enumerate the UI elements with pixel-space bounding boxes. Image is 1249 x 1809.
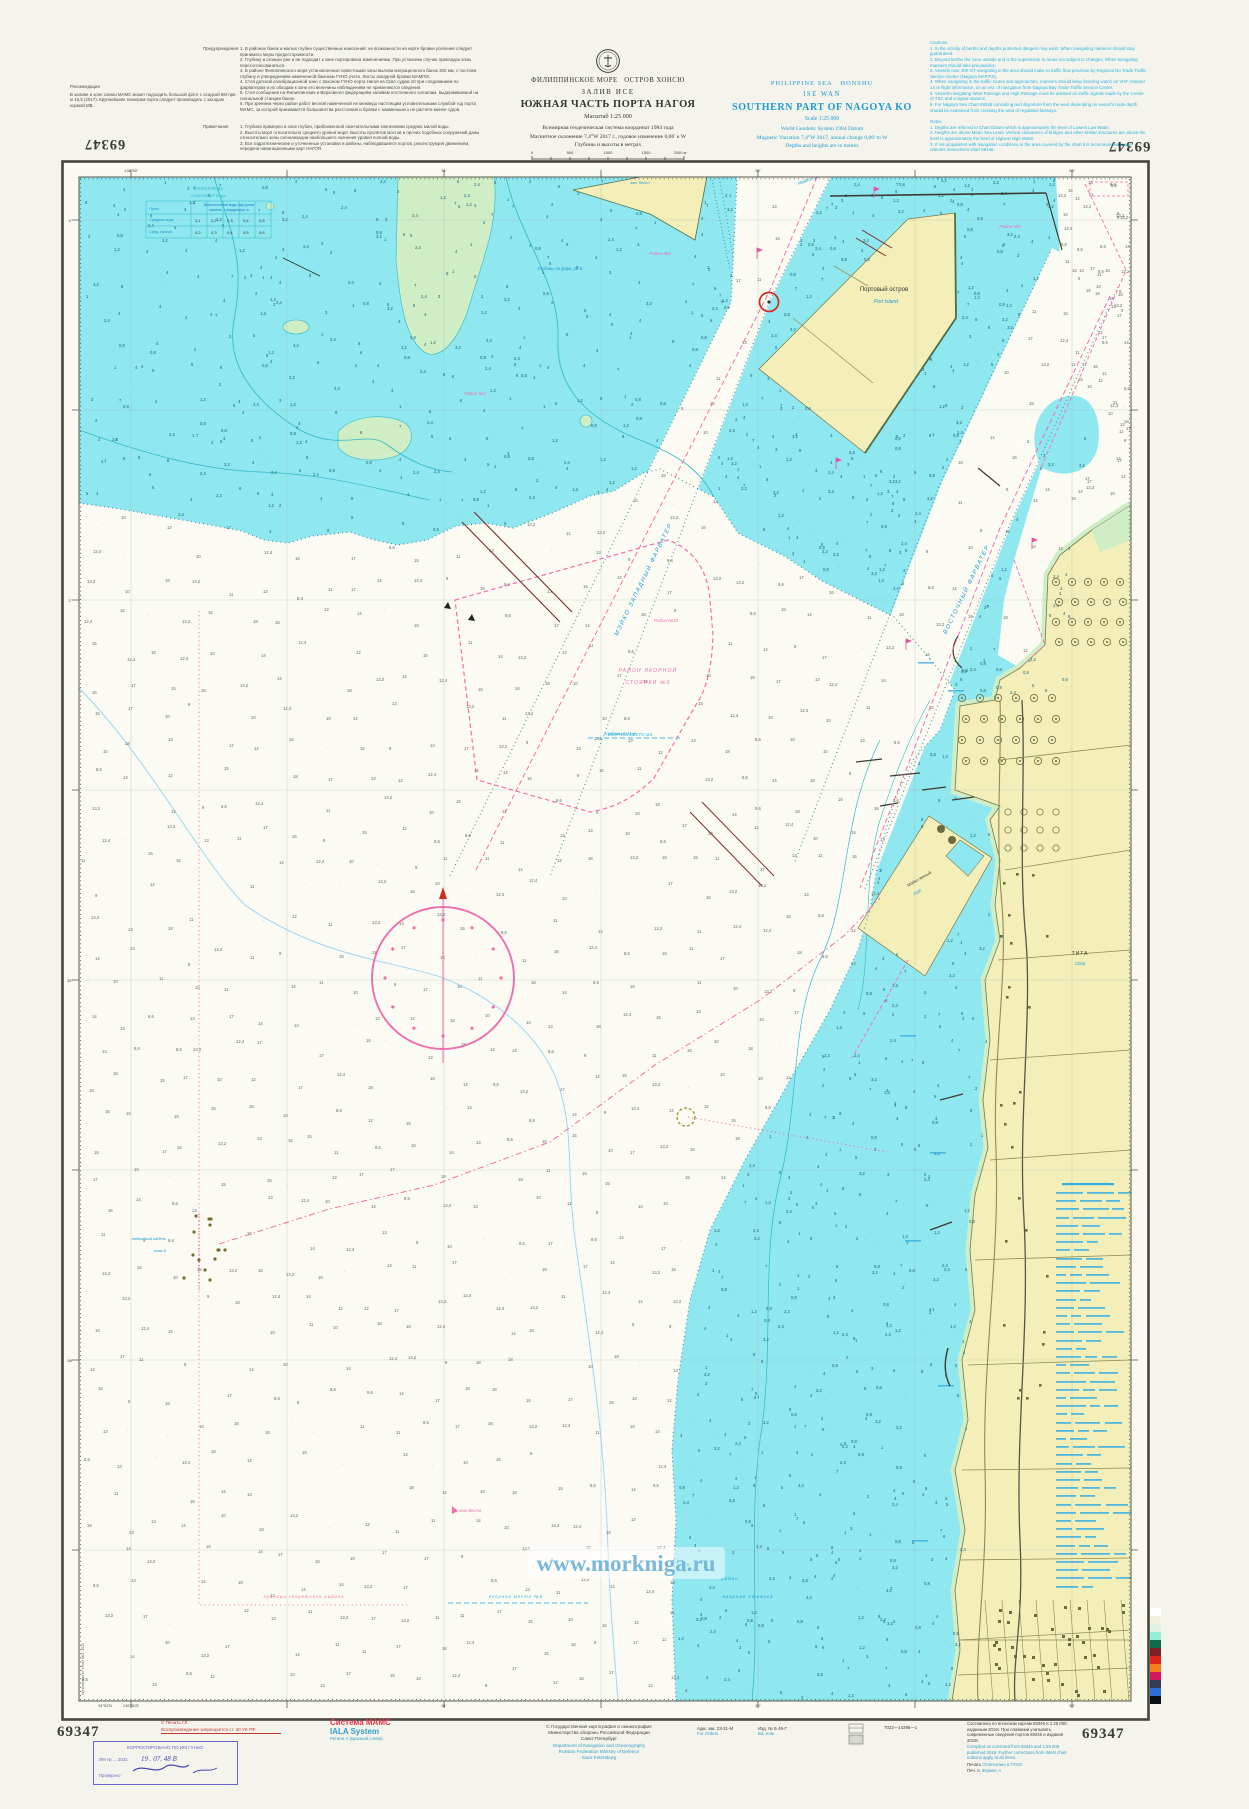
svg-text:51': 51' [441, 168, 446, 173]
svg-text:14: 14 [249, 1367, 254, 1372]
svg-text:12: 12 [595, 1074, 600, 1079]
svg-text:17: 17 [720, 956, 725, 961]
svg-text:16: 16 [701, 525, 706, 530]
svg-text:14: 14 [95, 956, 100, 961]
svg-text:13: 13 [387, 1263, 392, 1268]
svg-text:15: 15 [731, 1118, 736, 1123]
svg-text:11: 11 [867, 615, 872, 620]
svg-text:12: 12 [648, 1683, 653, 1688]
svg-text:8,6: 8,6 [653, 1483, 659, 1488]
svg-text:·: · [539, 462, 540, 467]
svg-text:16: 16 [633, 498, 638, 503]
svg-text:1,2: 1,2 [440, 195, 446, 200]
svg-text:·: · [824, 984, 825, 989]
svg-text:8,6: 8,6 [624, 716, 630, 721]
svg-text:1,2: 1,2 [430, 340, 436, 345]
svg-text:0,8: 0,8 [701, 1616, 707, 1621]
svg-text:16: 16 [488, 1421, 493, 1426]
svg-text:18: 18 [368, 1085, 373, 1090]
svg-text:14: 14 [610, 1584, 615, 1589]
svg-text:·: · [915, 1518, 916, 1523]
svg-text:13: 13 [560, 833, 565, 838]
svg-text:10: 10 [165, 714, 170, 719]
svg-text:13: 13 [128, 927, 133, 932]
svg-text:3,2: 3,2 [289, 375, 295, 380]
svg-text:18: 18 [588, 856, 593, 861]
svg-text:1,2: 1,2 [751, 1610, 757, 1615]
svg-text:10: 10 [349, 859, 354, 864]
svg-text:0,8: 0,8 [915, 1625, 921, 1630]
svg-text:18: 18 [125, 741, 130, 746]
svg-text:12: 12 [619, 1235, 624, 1240]
svg-text:10: 10 [720, 1072, 725, 1077]
svg-text:15: 15 [289, 737, 294, 742]
svg-text:16: 16 [515, 686, 520, 691]
svg-text:8,6: 8,6 [1124, 386, 1130, 391]
svg-text:18: 18 [810, 778, 815, 783]
svg-text:10: 10 [536, 1195, 541, 1200]
svg-text:0,8: 0,8 [692, 347, 698, 352]
svg-text:·: · [676, 1534, 677, 1539]
svg-text:2,4: 2,4 [348, 280, 354, 285]
svg-text:14: 14 [851, 928, 856, 933]
svg-text:13: 13 [268, 1195, 273, 1200]
svg-text:12,4: 12,4 [646, 1589, 655, 1594]
svg-text:·: · [990, 919, 991, 924]
svg-text:·: · [313, 1430, 314, 1435]
svg-text:1,2: 1,2 [886, 1323, 892, 1328]
svg-text:2,4: 2,4 [485, 366, 491, 371]
svg-text:·: · [377, 862, 378, 867]
svg-text:10: 10 [968, 545, 973, 550]
svg-text:·: · [1068, 564, 1069, 569]
svg-text:15: 15 [450, 1018, 455, 1023]
svg-text:13,2: 13,2 [408, 1355, 417, 1360]
svg-text:12: 12 [669, 1108, 674, 1113]
svg-text:17: 17 [661, 1246, 666, 1251]
svg-text:1,2: 1,2 [893, 198, 899, 203]
svg-text:15: 15 [221, 1182, 226, 1187]
svg-text:18: 18 [416, 1676, 421, 1681]
svg-text:3,2: 3,2 [993, 180, 999, 185]
svg-text:·: · [870, 1230, 871, 1235]
svg-text:3,2: 3,2 [504, 297, 510, 302]
svg-text:14: 14 [130, 1654, 135, 1659]
svg-text:Высота полной воды над нулем: Высота полной воды над нулем [204, 203, 255, 207]
svg-text:2,4: 2,4 [608, 237, 614, 242]
svg-text:12,4: 12,4 [346, 1247, 355, 1252]
svg-text:16: 16 [526, 1398, 531, 1403]
svg-text:·: · [133, 387, 134, 392]
svg-text:15: 15 [95, 711, 100, 716]
svg-text:0,8: 0,8 [591, 423, 597, 428]
svg-text:13,2: 13,2 [438, 1299, 447, 1304]
svg-text:2,4: 2,4 [380, 179, 386, 184]
svg-text:СИЗИГИЙНАЯ ВОДА: СИЗИГИЙНАЯ ВОДА [190, 194, 226, 198]
svg-text:2,4: 2,4 [769, 1576, 775, 1581]
svg-text:15: 15 [572, 1133, 577, 1138]
svg-text:13: 13 [168, 737, 173, 742]
svg-text:8,6: 8,6 [501, 930, 507, 935]
svg-text:2,4: 2,4 [112, 437, 118, 442]
svg-text:0,8: 0,8 [784, 312, 790, 317]
svg-text:12: 12 [1102, 371, 1107, 376]
svg-text:0,8: 0,8 [866, 991, 872, 996]
svg-text:0,8: 0,8 [980, 688, 986, 693]
svg-text:11: 11 [1071, 362, 1076, 367]
svg-text:14: 14 [1116, 456, 1121, 461]
svg-text:14: 14 [925, 652, 930, 657]
svg-text:2,4: 2,4 [854, 1053, 860, 1058]
svg-text:0,8: 0,8 [660, 401, 666, 406]
svg-text:Пункт: Пункт [149, 207, 159, 211]
svg-text:·: · [728, 511, 729, 516]
svg-text:15: 15 [197, 1267, 202, 1272]
svg-text:3,2: 3,2 [871, 571, 877, 576]
svg-text:·: · [901, 689, 902, 694]
svg-text:18: 18 [750, 675, 755, 680]
svg-text:·: · [979, 1040, 980, 1045]
svg-text:17: 17 [668, 881, 673, 886]
svg-text:3,2: 3,2 [898, 209, 904, 214]
svg-text:·: · [596, 891, 597, 896]
svg-text:136°50': 136°50' [124, 168, 138, 173]
svg-text:·: · [263, 918, 264, 923]
svg-text:10: 10 [165, 1640, 170, 1645]
svg-text:13: 13 [151, 1519, 156, 1524]
svg-text:0,8: 0,8 [1062, 677, 1068, 682]
svg-text:10: 10 [350, 1556, 355, 1561]
svg-text:1,2: 1,2 [970, 833, 976, 838]
svg-text:8,6: 8,6 [423, 1420, 429, 1425]
svg-text:1,2: 1,2 [481, 310, 487, 315]
svg-text:0,8: 0,8 [290, 431, 296, 436]
svg-text:10: 10 [602, 716, 607, 721]
svg-text:14: 14 [1033, 498, 1038, 503]
svg-text:0,6: 0,6 [259, 230, 265, 235]
svg-text:16: 16 [249, 1104, 254, 1109]
svg-text:13,2: 13,2 [105, 1613, 114, 1618]
svg-text:3,2: 3,2 [696, 1617, 702, 1622]
svg-text:·: · [954, 926, 955, 931]
svg-text:13,2: 13,2 [936, 622, 945, 627]
svg-text:3,2: 3,2 [1007, 325, 1013, 330]
svg-text:13,2: 13,2 [286, 1272, 295, 1277]
svg-text:10: 10 [221, 1513, 226, 1518]
svg-text:2,4: 2,4 [474, 182, 480, 187]
svg-text:18: 18 [797, 950, 802, 955]
svg-text:18: 18 [253, 619, 258, 624]
svg-text:17: 17 [359, 1172, 364, 1177]
svg-text:15: 15 [528, 1619, 533, 1624]
svg-text:0,8: 0,8 [909, 1268, 915, 1273]
svg-text:0,8: 0,8 [805, 406, 811, 411]
svg-text:1,2: 1,2 [742, 402, 748, 407]
svg-text:13,2: 13,2 [1041, 362, 1050, 367]
svg-text:14: 14 [339, 1582, 344, 1587]
svg-text:14: 14 [1058, 546, 1063, 551]
svg-text:·: · [469, 893, 470, 898]
svg-text:0,8: 0,8 [858, 1452, 864, 1457]
svg-text:18: 18 [293, 774, 298, 779]
svg-text:12: 12 [292, 914, 297, 919]
svg-text:8,6: 8,6 [591, 1237, 597, 1242]
svg-text:13,2: 13,2 [182, 619, 191, 624]
svg-text:12,4: 12,4 [298, 640, 307, 645]
svg-text:18: 18 [670, 1580, 675, 1585]
svg-text:3,2: 3,2 [646, 301, 652, 306]
svg-text:·: · [167, 1433, 168, 1438]
svg-text:2,4: 2,4 [712, 306, 718, 311]
svg-text:8,6: 8,6 [84, 1457, 90, 1462]
svg-text:10: 10 [353, 990, 358, 995]
svg-text:18: 18 [661, 473, 666, 478]
svg-text:10: 10 [813, 836, 818, 841]
svg-text:2,4: 2,4 [901, 541, 907, 546]
svg-text:17: 17 [382, 1550, 387, 1555]
svg-text:12: 12 [410, 1016, 415, 1021]
svg-text:·: · [528, 796, 529, 801]
svg-text:зап. бейсн: зап. бейсн [629, 180, 650, 185]
svg-text:12,4: 12,4 [127, 657, 136, 662]
svg-text:0,8: 0,8 [896, 1465, 902, 1470]
svg-text:12: 12 [631, 1517, 636, 1522]
svg-text:0,8: 0,8 [802, 1578, 808, 1583]
svg-text:14: 14 [136, 1197, 141, 1202]
svg-text:1,2: 1,2 [1006, 303, 1012, 308]
svg-text:14: 14 [474, 768, 479, 773]
svg-text:17: 17 [143, 1614, 148, 1619]
svg-text:11: 11 [101, 1232, 106, 1237]
svg-text:1,2: 1,2 [934, 1230, 940, 1235]
svg-text:13: 13 [691, 738, 696, 743]
svg-text:0,8: 0,8 [817, 1672, 823, 1677]
svg-text:2,4: 2,4 [842, 1332, 848, 1337]
svg-text:3,2: 3,2 [93, 282, 99, 287]
svg-text:0,8: 0,8 [366, 460, 372, 465]
svg-text:12,4: 12,4 [595, 1330, 604, 1335]
svg-text:13,2: 13,2 [652, 1270, 661, 1275]
svg-text:15: 15 [685, 1175, 690, 1180]
svg-text:12: 12 [402, 826, 407, 831]
svg-text:10: 10 [103, 749, 108, 754]
svg-text:8,6: 8,6 [778, 582, 784, 587]
svg-text:13,2: 13,2 [673, 1299, 682, 1304]
svg-text:13: 13 [596, 550, 601, 555]
svg-text:12,4: 12,4 [589, 945, 598, 950]
svg-text:0,8: 0,8 [841, 257, 847, 262]
svg-text:12,4: 12,4 [337, 1072, 346, 1077]
svg-text:10: 10 [823, 749, 828, 754]
svg-text:13: 13 [403, 1452, 408, 1457]
svg-text:12,4: 12,4 [529, 878, 538, 883]
svg-text:10: 10 [429, 810, 434, 815]
svg-text:11: 11 [556, 1590, 561, 1595]
svg-text:3,2: 3,2 [816, 210, 822, 215]
svg-text:12,4: 12,4 [466, 1640, 475, 1645]
svg-text:15: 15 [1005, 529, 1010, 534]
svg-text:18: 18 [235, 1300, 240, 1305]
svg-text:1,2: 1,2 [552, 438, 558, 443]
svg-text:14: 14 [126, 1546, 131, 1551]
svg-text:13,2: 13,2 [218, 1141, 227, 1146]
svg-text:17: 17 [667, 590, 672, 595]
svg-text:8,6: 8,6 [491, 1578, 497, 1583]
svg-text:11: 11 [456, 554, 461, 559]
svg-text:16: 16 [211, 1449, 216, 1454]
svg-text:·: · [156, 1454, 157, 1459]
svg-text:·: · [551, 548, 552, 553]
svg-text:8,6: 8,6 [1100, 244, 1106, 249]
svg-text:1,2: 1,2 [480, 489, 486, 494]
svg-text:2,5: 2,5 [259, 218, 265, 223]
svg-text:11: 11 [866, 705, 871, 710]
svg-text:3,2: 3,2 [927, 496, 933, 501]
svg-text:0,8: 0,8 [961, 669, 967, 674]
svg-text:·: · [654, 407, 655, 412]
svg-text:10: 10 [125, 589, 130, 594]
svg-text:11: 11 [229, 592, 234, 597]
svg-text:·: · [810, 1368, 811, 1373]
svg-text:10: 10 [95, 1328, 100, 1333]
svg-text:1,2: 1,2 [884, 1090, 890, 1095]
svg-text:0,8: 0,8 [123, 404, 129, 409]
svg-text:1,2: 1,2 [727, 456, 733, 461]
svg-text:17: 17 [371, 1616, 376, 1621]
svg-text:17: 17 [776, 679, 781, 684]
svg-text:11: 11 [553, 918, 558, 923]
svg-text:3,2: 3,2 [979, 946, 985, 951]
svg-text:18: 18 [89, 1088, 94, 1093]
svg-text:·: · [1031, 588, 1032, 593]
svg-text:13: 13 [392, 701, 397, 706]
svg-text:11: 11 [468, 640, 473, 645]
svg-text:10: 10 [625, 831, 630, 836]
svg-text:·: · [127, 1428, 128, 1433]
svg-text:15: 15 [558, 1486, 563, 1491]
svg-text:17: 17 [263, 825, 268, 830]
svg-text:18: 18 [614, 1354, 619, 1359]
svg-text:17: 17 [452, 1260, 457, 1265]
svg-text:12,4: 12,4 [389, 1356, 398, 1361]
svg-text:13: 13 [204, 838, 209, 843]
svg-text:14: 14 [277, 676, 282, 681]
svg-text:12,4: 12,4 [763, 928, 772, 933]
svg-text:15: 15 [275, 620, 280, 625]
svg-text:17: 17 [455, 1424, 460, 1429]
svg-text:якорная стоянка: якорная стоянка [721, 1594, 773, 1599]
svg-text:17: 17 [93, 1177, 98, 1182]
svg-text:10: 10 [758, 1076, 763, 1081]
svg-text:15: 15 [98, 1386, 103, 1391]
svg-text:8,6: 8,6 [742, 775, 748, 780]
svg-text:17: 17 [351, 587, 356, 592]
svg-text:13,2: 13,2 [147, 1559, 156, 1564]
svg-text:·: · [759, 561, 760, 566]
svg-text:11: 11 [1032, 309, 1037, 314]
svg-text:0,8: 0,8 [150, 350, 156, 355]
svg-text:16: 16 [1086, 288, 1091, 293]
svg-text:2,4: 2,4 [724, 1677, 730, 1682]
svg-text:16: 16 [838, 797, 843, 802]
svg-text:Район №2: Район №2 [464, 390, 486, 396]
svg-text:13: 13 [257, 1136, 262, 1141]
svg-text:·: · [824, 1023, 825, 1028]
svg-text:15: 15 [456, 799, 461, 804]
svg-text:11: 11 [1097, 272, 1102, 277]
svg-text:11: 11 [237, 836, 242, 841]
svg-text:17: 17 [1090, 266, 1095, 271]
svg-text:18: 18 [476, 1360, 481, 1365]
svg-text:Район №4: Район №4 [649, 250, 671, 256]
svg-text:3,2: 3,2 [1079, 463, 1085, 468]
svg-text:2,4: 2,4 [957, 430, 963, 435]
svg-text:14: 14 [562, 990, 567, 995]
svg-text:13,2: 13,2 [499, 744, 508, 749]
svg-text:8,6: 8,6 [330, 1387, 336, 1392]
svg-text:12,4: 12,4 [182, 1460, 191, 1465]
svg-text:2,4: 2,4 [944, 1267, 950, 1272]
svg-text:12,4: 12,4 [1064, 226, 1073, 231]
svg-text:13: 13 [815, 677, 820, 682]
svg-text:13: 13 [320, 1683, 325, 1688]
svg-text:10: 10 [251, 715, 256, 720]
svg-text:14: 14 [201, 1579, 206, 1584]
svg-text:0,8: 0,8 [329, 468, 335, 473]
svg-text:0,8: 0,8 [766, 1306, 772, 1311]
svg-text:·: · [148, 613, 149, 618]
svg-text:·: · [794, 206, 795, 211]
svg-text:11: 11 [335, 1642, 340, 1647]
svg-text:·: · [569, 704, 570, 709]
svg-text:10: 10 [706, 673, 711, 678]
svg-text:13: 13 [473, 1204, 478, 1209]
svg-text:·: · [976, 359, 977, 364]
svg-text:15: 15 [168, 1329, 173, 1334]
svg-text:8,6: 8,6 [168, 1238, 174, 1243]
svg-text:136°50'E: 136°50'E [123, 1703, 139, 1708]
svg-text:11: 11 [697, 929, 702, 934]
svg-text:11: 11 [224, 987, 229, 992]
svg-text:3,2: 3,2 [1007, 232, 1013, 237]
svg-text:2,4: 2,4 [253, 402, 259, 407]
svg-text:·: · [169, 1622, 170, 1627]
svg-text:18: 18 [234, 1421, 239, 1426]
svg-text:·: · [354, 1022, 355, 1027]
svg-text:·: · [971, 815, 972, 820]
svg-text:СТОЯНКИ №3: СТОЯНКИ №3 [625, 680, 670, 686]
svg-text:17: 17 [464, 746, 469, 751]
svg-text:3,2: 3,2 [933, 1277, 939, 1282]
svg-text:14: 14 [572, 1112, 577, 1117]
svg-text:18: 18 [735, 1136, 740, 1141]
svg-text:13,2: 13,2 [378, 879, 387, 884]
svg-text:13: 13 [562, 650, 567, 655]
svg-text:11: 11 [1075, 350, 1080, 355]
svg-text:16: 16 [690, 1147, 695, 1152]
svg-text:·: · [820, 1173, 821, 1178]
svg-text:12: 12 [598, 929, 603, 934]
svg-text:2,4: 2,4 [892, 1003, 898, 1008]
svg-text:12: 12 [786, 1075, 791, 1080]
svg-text:16: 16 [662, 855, 667, 860]
svg-text:11: 11 [328, 922, 333, 927]
svg-text:17: 17 [736, 278, 741, 283]
svg-text:17: 17 [278, 1552, 283, 1557]
svg-text:11: 11 [567, 1201, 572, 1206]
svg-text:12,4: 12,4 [272, 1294, 281, 1299]
svg-text:17: 17 [226, 525, 231, 530]
